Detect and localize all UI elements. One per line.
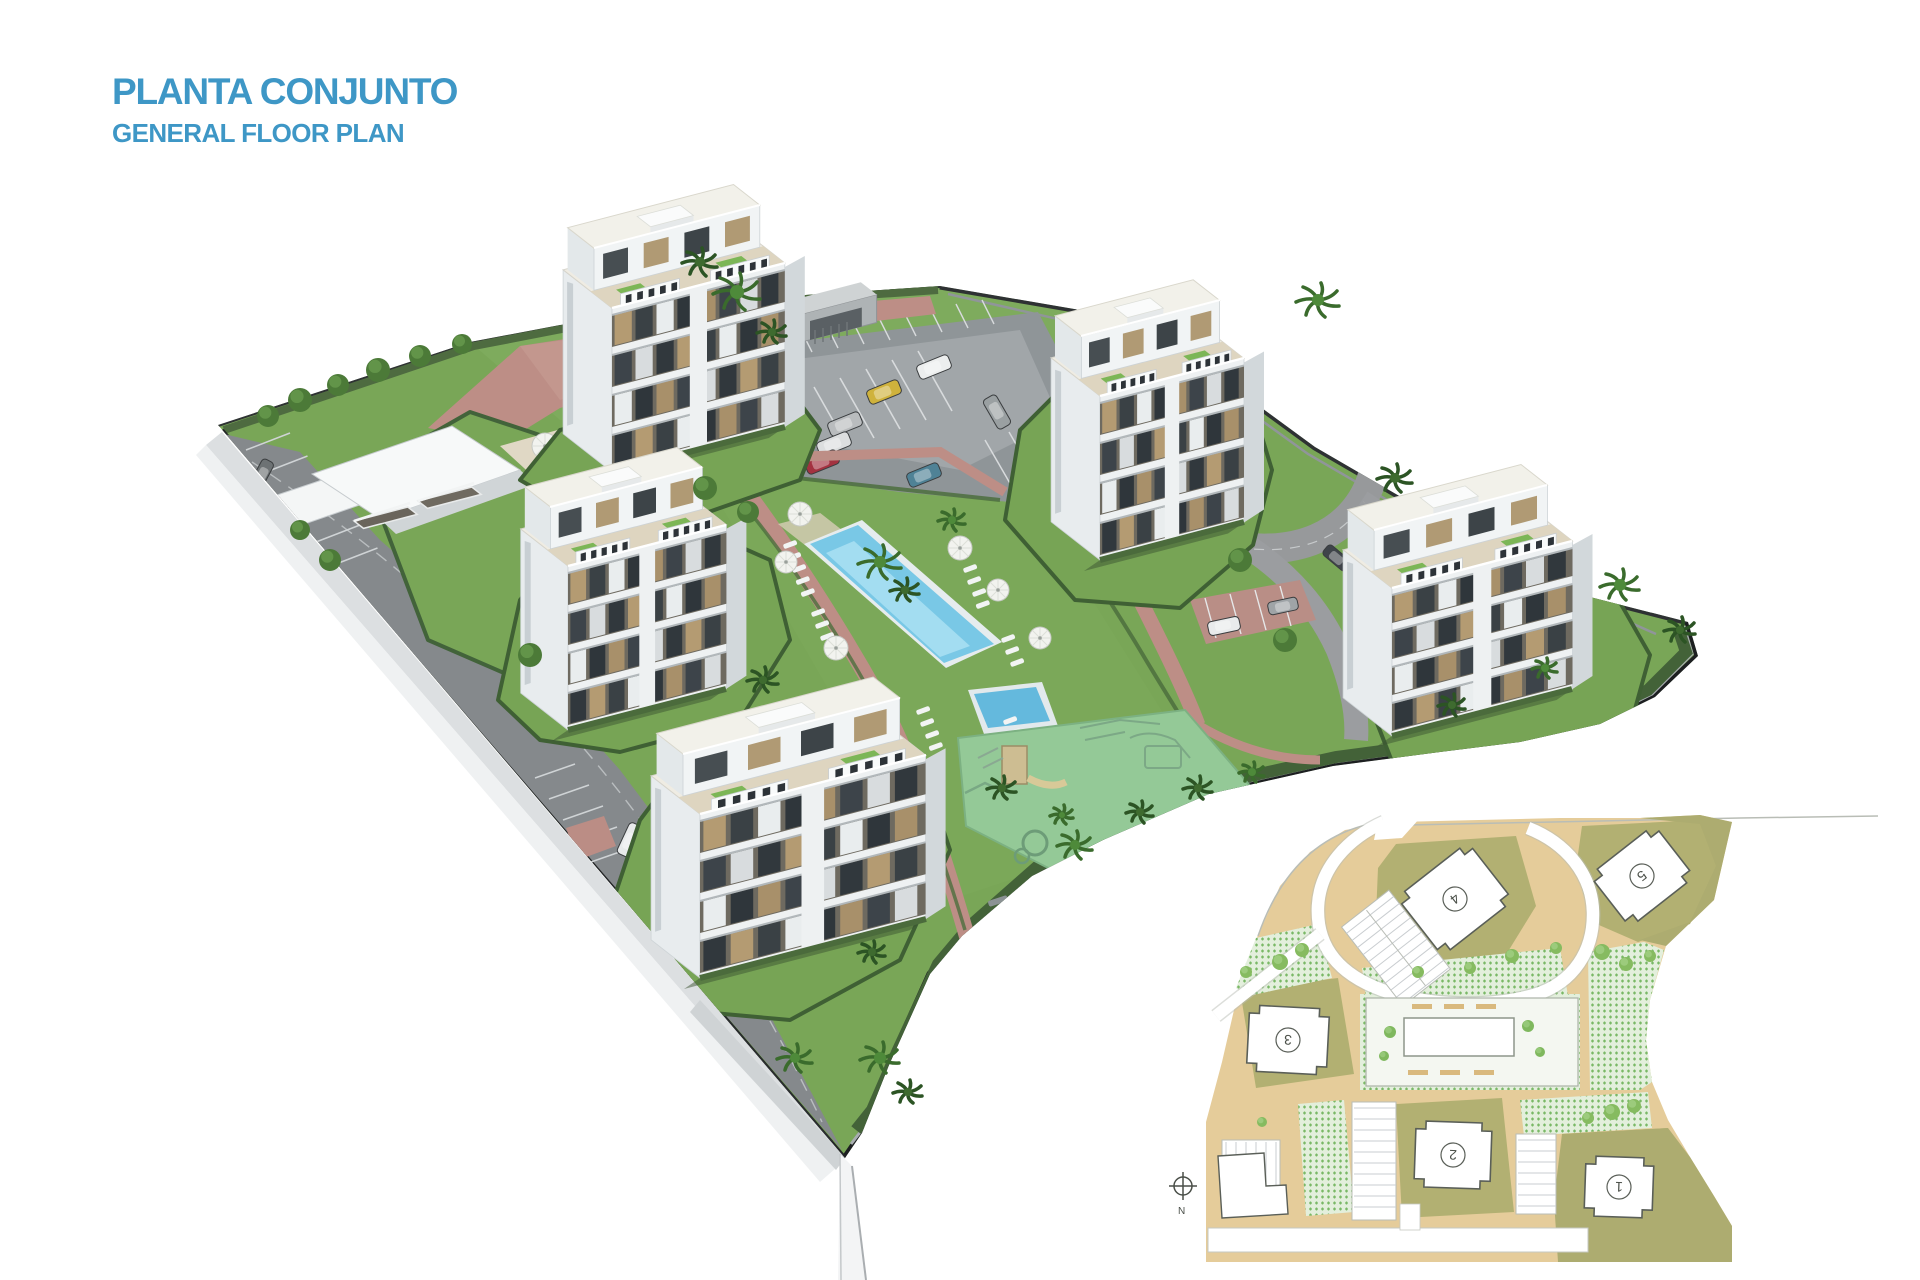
svg-text:1: 1 — [1615, 1179, 1624, 1195]
svg-text:N: N — [1178, 1206, 1185, 1217]
svg-text:GENERAL FLOOR PLAN: GENERAL FLOOR PLAN — [112, 118, 404, 148]
svg-text:PLANTA CONJUNTO: PLANTA CONJUNTO — [112, 71, 458, 112]
svg-text:2: 2 — [1449, 1147, 1458, 1163]
svg-text:3: 3 — [1283, 1032, 1292, 1048]
